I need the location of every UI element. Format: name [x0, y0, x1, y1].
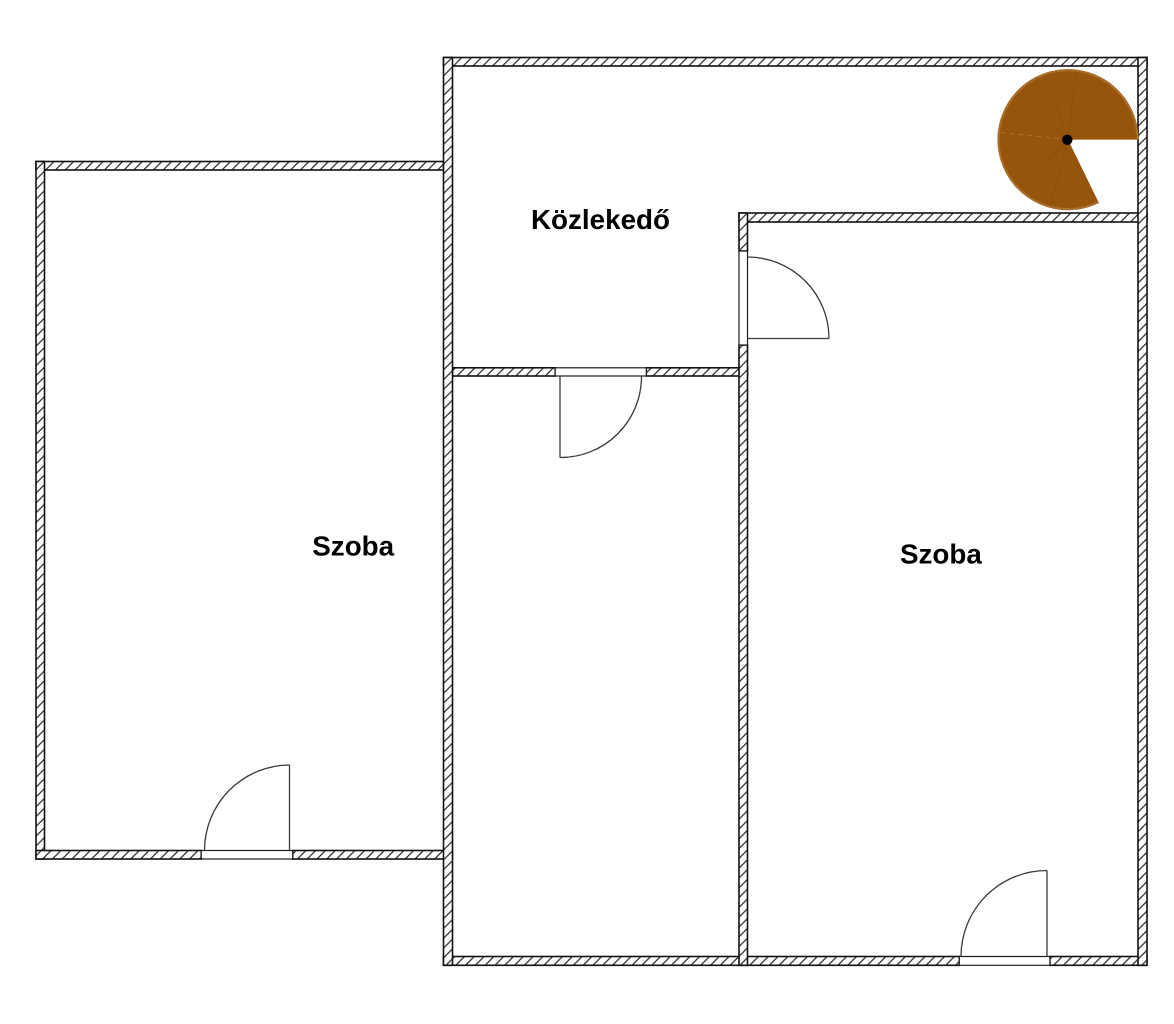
- svg-text:Közlekedő: Közlekedő: [531, 204, 670, 235]
- svg-text:Szoba: Szoba: [900, 539, 982, 570]
- svg-text:Szoba: Szoba: [312, 531, 394, 562]
